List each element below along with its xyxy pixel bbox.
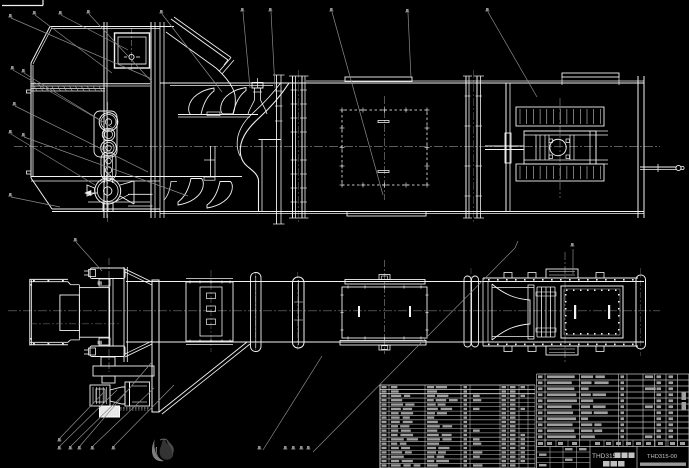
svg-text:THD315-00: THD315-00 — [647, 454, 677, 460]
svg-text:THD315: THD315 — [592, 453, 617, 460]
